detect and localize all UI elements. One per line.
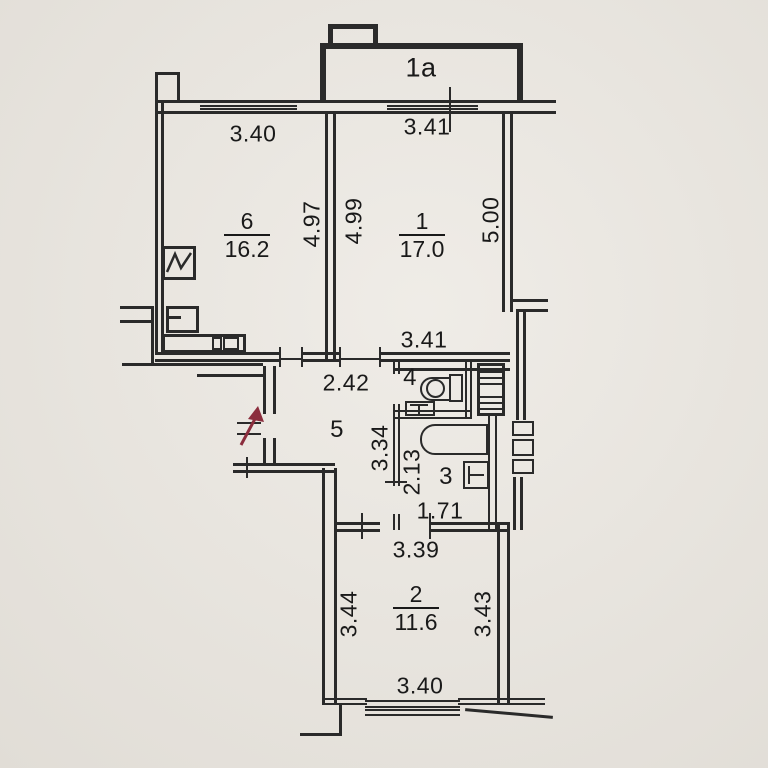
- room-number: 2: [393, 582, 439, 609]
- window-room6: [200, 100, 297, 114]
- dim-room1-bottom: 3.41: [401, 327, 448, 354]
- bath-sink-tap: [468, 474, 484, 476]
- bathtub-icon: [420, 424, 488, 455]
- wall-right-mid: [516, 312, 526, 420]
- riser-shaft: [512, 439, 534, 456]
- neighbor-wall: [339, 705, 342, 736]
- window-pane-line: [387, 105, 478, 107]
- shaft-hatch: [480, 377, 502, 379]
- wall-notch: [155, 72, 158, 102]
- wall-room2-bottom: [458, 698, 545, 705]
- corridor-wall: [122, 363, 263, 366]
- wc-sink-tap: [418, 404, 420, 414]
- closet-nook: [166, 306, 199, 333]
- dim-tick: [246, 457, 248, 478]
- neighbor-wall: [300, 733, 342, 736]
- balcony-label: 1a: [405, 53, 436, 84]
- break-line: [465, 708, 553, 719]
- room-label-6: 6 16.2: [219, 209, 275, 262]
- room-area: 16.2: [219, 237, 275, 262]
- dim-bath-width: 1.71: [417, 498, 464, 525]
- dim-hall-height: 3.34: [367, 425, 394, 472]
- wall-rooms-bottom: [155, 352, 280, 362]
- toilet-tank-icon: [449, 374, 463, 402]
- window-pane-line: [200, 108, 297, 110]
- dim-room2-right: 3.43: [470, 591, 497, 638]
- room-label-2: 2 11.6: [388, 582, 444, 635]
- toilet-seat-icon: [426, 379, 445, 398]
- exterior-wall-left: [155, 100, 164, 352]
- window-pane-line: [200, 105, 297, 107]
- dim-hall-width: 2.42: [323, 370, 370, 397]
- dim-room2-left: 3.44: [336, 591, 363, 638]
- dim-top-left: 3.40: [230, 121, 277, 148]
- wall-room2-right: [497, 522, 510, 703]
- wardrobe-divider: [223, 337, 239, 350]
- wall-room2-top: [335, 522, 380, 532]
- closet-nook-line: [168, 316, 181, 319]
- dim-bath-height: 2.13: [399, 449, 426, 496]
- riser-shaft: [512, 421, 534, 436]
- room-area: 17.0: [394, 237, 450, 262]
- wall-rooms-bottom: [302, 352, 340, 362]
- window-pane-line: [365, 709, 460, 711]
- wall-rooms-bottom: [380, 352, 510, 362]
- wall-right-lower: [513, 477, 523, 530]
- door-tick: [379, 347, 381, 367]
- zigzag-icon: [162, 246, 196, 280]
- room-label-5: 5: [330, 416, 344, 444]
- dim-room1-height-right: 5.00: [478, 197, 505, 244]
- shaft-hatch: [480, 408, 502, 410]
- dim-room2-top: 3.39: [393, 537, 440, 564]
- wall-wc-bath-left: [393, 514, 400, 530]
- room-label-1: 1 17.0: [394, 209, 450, 262]
- neighbor-wall: [151, 306, 154, 366]
- wall-notch: [177, 72, 180, 102]
- wall-room2-bottom: [322, 698, 367, 705]
- window-room2: [365, 700, 460, 716]
- door-tick: [361, 513, 363, 539]
- door-tick: [301, 347, 303, 367]
- balcony-bump-wall: [328, 24, 378, 45]
- door-threshold-room1: [340, 358, 380, 360]
- dim-room6-height: 4.97: [299, 201, 326, 248]
- wall-room2-left: [322, 468, 337, 703]
- floor-plan: 1a: [0, 0, 768, 768]
- shaft-hatch: [480, 383, 502, 385]
- entrance-arrow-icon: [233, 404, 269, 448]
- room-number: 6: [224, 209, 270, 236]
- dim-room2-bottom: 3.40: [397, 673, 444, 700]
- shaft-hatch: [480, 396, 502, 398]
- riser-shaft: [512, 459, 534, 474]
- neighbor-wall: [120, 306, 154, 309]
- room-label-4: 4: [403, 364, 417, 392]
- dim-top-right: 3.41: [404, 114, 451, 141]
- room-label-3: 3: [439, 463, 453, 491]
- window-pane-line: [387, 108, 478, 110]
- corridor-wall: [197, 374, 263, 377]
- wall-room6-room1: [325, 114, 336, 362]
- room-number: 1: [399, 209, 445, 236]
- wardrobe-divider: [212, 337, 222, 350]
- door-threshold-room6: [280, 358, 302, 360]
- neighbor-wall: [120, 320, 154, 323]
- neighbor-wall: [513, 299, 548, 302]
- window-pane-line: [365, 706, 460, 708]
- room-area: 11.6: [388, 610, 444, 635]
- shaft-hatch: [480, 371, 502, 373]
- door-tick: [279, 347, 281, 367]
- wall-hall-bottom: [233, 463, 335, 473]
- window-room1: [387, 100, 478, 114]
- wall-wc-bath-left: [393, 362, 400, 374]
- shaft-hatch: [480, 402, 502, 404]
- wall-wc-right: [465, 362, 472, 419]
- dim-room1-height-left: 4.99: [341, 198, 368, 245]
- door-tick: [339, 347, 341, 367]
- wall-bath-right: [488, 414, 497, 530]
